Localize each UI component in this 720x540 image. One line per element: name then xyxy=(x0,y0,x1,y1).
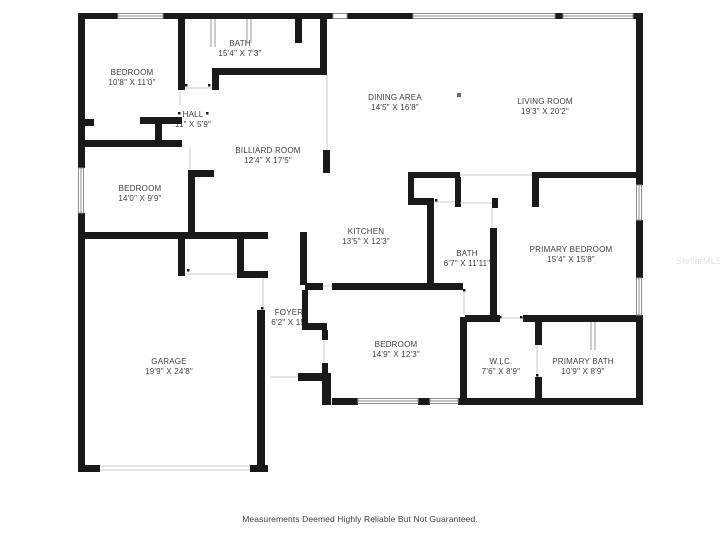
room-label-garage: GARAGE19'9" X 24'8" xyxy=(89,357,249,376)
room-dims: 14'0" X 9'9" xyxy=(60,194,220,204)
room-name: BEDROOM xyxy=(316,340,476,350)
room-label-kitchen: KITCHEN13'5" X 12'3" xyxy=(286,227,446,246)
room-label-billiard-room: BILLIARD ROOM12'4" X 17'5" xyxy=(188,146,348,165)
room-dims: 15'4" X 15'8" xyxy=(491,255,651,265)
fixture-symbols xyxy=(211,19,595,350)
room-name: BILLIARD ROOM xyxy=(188,146,348,156)
floor-plan-page: StellarMLS BEDROOM10'8" X 11'0" BATH15'4… xyxy=(0,0,720,540)
room-name: DINING AREA xyxy=(315,93,475,103)
room-dims: 10'8" X 11'0" xyxy=(52,78,212,88)
room-name: PRIMARY BEDROOM xyxy=(491,245,651,255)
room-label-bedroom-2: BEDROOM14'0" X 9'9" xyxy=(60,184,220,203)
room-name: BATH xyxy=(160,39,320,49)
room-label-living-room: LIVING ROOM19'3" X 20'2" xyxy=(465,97,625,116)
room-name: GARAGE xyxy=(89,357,249,367)
mls-watermark: StellarMLS xyxy=(676,256,720,266)
door-opening-lines xyxy=(100,75,537,470)
room-dims: 6'2" X 15' xyxy=(209,318,369,328)
room-dims: 12'4" X 17'5" xyxy=(188,156,348,166)
room-name: HALL xyxy=(113,110,273,120)
room-dims: 19'9" X 24'8" xyxy=(89,367,249,377)
room-dims: 11" X 5'9" xyxy=(113,120,273,130)
room-dims: 15'4" X 7'3" xyxy=(160,49,320,59)
room-dims: 13'5" X 12'3" xyxy=(286,237,446,247)
room-label-foyer: FOYER6'2" X 15' xyxy=(209,308,369,327)
room-label-primary-bath: PRIMARY BATH10'9" X 8'9" xyxy=(503,357,663,376)
room-label-primary-bedroom: PRIMARY BEDROOM15'4" X 15'8" xyxy=(491,245,651,264)
room-name: BEDROOM xyxy=(60,184,220,194)
room-name: LIVING ROOM xyxy=(465,97,625,107)
room-dims: 19'3" X 20'2" xyxy=(465,107,625,117)
room-label-dining-area: DINING AREA14'5" X 16'8" xyxy=(315,93,475,112)
room-dims: 14'5" X 16'8" xyxy=(315,103,475,113)
measurements-disclaimer: Measurements Deemed Highly Reliable But … xyxy=(0,514,720,524)
room-dims: 10'9" X 8'9" xyxy=(503,367,663,377)
room-label-bath-1: BATH15'4" X 7'3" xyxy=(160,39,320,58)
room-name: KITCHEN xyxy=(286,227,446,237)
room-label-hall: HALL11" X 5'9" xyxy=(113,110,273,129)
room-name: FOYER xyxy=(209,308,369,318)
room-label-bedroom-1: BEDROOM10'8" X 11'0" xyxy=(52,68,212,87)
room-name: PRIMARY BATH xyxy=(503,357,663,367)
room-name: BEDROOM xyxy=(52,68,212,78)
